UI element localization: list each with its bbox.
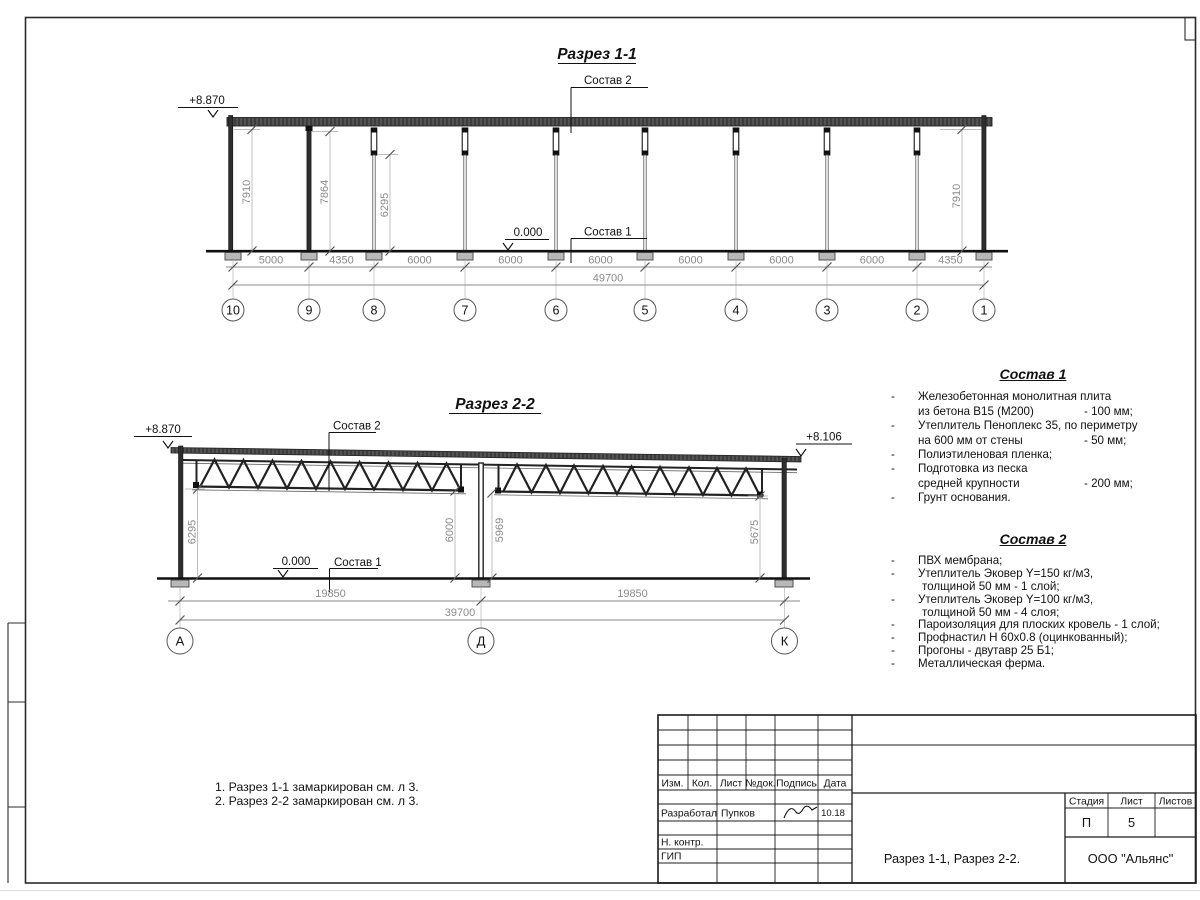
tb-col-ndok: №док.	[745, 779, 775, 790]
tb-sheet-value: 5	[1128, 815, 1135, 830]
svg-text:10: 10	[226, 304, 240, 318]
list-item: - Железобетонная монолитная плита	[878, 390, 1188, 404]
tb-sheets-h: Листов	[1159, 797, 1193, 808]
columns	[371, 128, 920, 252]
svg-text:+8.870: +8.870	[145, 424, 181, 436]
list-item: - Утеплитель Эковер Y=150 кг/м3,	[878, 568, 1188, 581]
svg-text:5: 5	[642, 304, 649, 318]
tb-doc-title: Разрез 1-1, Разрез 2-2.	[884, 851, 1020, 866]
tb-sheet-h: Лист	[1120, 797, 1143, 808]
svg-text:5675: 5675	[749, 520, 761, 544]
list-item: на 600 мм от стены - 50 мм;	[878, 434, 1188, 448]
list-item: - Грунт основания.	[878, 491, 1188, 505]
dim-chain: 5000 4350 6000 6000 6000 6000 6000 6000 …	[226, 255, 992, 300]
list-item: - Утеплитель Пеноплекс 35, по периметру	[878, 419, 1188, 433]
title-block: Изм. Кол. Лист №док. Подпись Дата Разраб…	[658, 715, 1196, 883]
svg-text:7910: 7910	[951, 184, 963, 208]
sostav1-spec: Состав 1 - Железобетонная монолитная пли…	[878, 367, 1188, 506]
svg-text:6: 6	[553, 304, 560, 318]
elevation-mark: +8.870	[178, 95, 238, 117]
axis-bubbles-2: А Д К	[167, 628, 798, 654]
sostav1-title: Состав 1	[878, 367, 1188, 381]
section1-title: Разрез 1-1	[557, 46, 637, 63]
svg-text:К: К	[781, 634, 789, 649]
svg-text:6295: 6295	[187, 520, 199, 544]
svg-text:6000: 6000	[678, 255, 702, 267]
signature	[784, 806, 817, 818]
svg-text:6000: 6000	[860, 255, 884, 267]
foundation-pads-2	[171, 580, 793, 587]
tb-stage-h: Стадия	[1069, 797, 1104, 808]
elevation-mark-right-2: +8.106	[796, 432, 852, 457]
list-item: толщиной 50 мм - 1 слой;	[878, 581, 1188, 594]
tb-nk-role: Н. контр.	[661, 838, 704, 849]
svg-text:7910: 7910	[241, 180, 253, 204]
svg-text:2: 2	[914, 304, 921, 318]
tb-dev-name: Пупков	[721, 809, 755, 820]
elevation-mark-left-2: +8.870	[134, 424, 192, 448]
svg-text:6295: 6295	[379, 193, 391, 217]
section-1-1: Разрез 1-1	[178, 46, 1008, 321]
tb-col-list: Лист	[720, 779, 743, 790]
list-item: - Полиэтиленовая пленка;	[878, 448, 1188, 462]
svg-text:5000: 5000	[259, 255, 283, 267]
tb-col-podpis: Подпись	[776, 779, 817, 790]
svg-text:0.000: 0.000	[282, 556, 311, 568]
svg-text:4: 4	[733, 304, 740, 318]
vertical-dims-2: 6295 6000 5969 5675	[185, 485, 768, 583]
truss-right	[494, 465, 768, 499]
note-line: 1. Разрез 1-1 замаркирован см. л 3.	[215, 780, 419, 794]
section-2-2: Разрез 2-2	[134, 396, 852, 654]
svg-text:6000: 6000	[498, 255, 522, 267]
roof-slab-2	[171, 448, 801, 463]
sostav1-leader-2: Состав 1	[330, 557, 382, 592]
svg-text:6000: 6000	[769, 255, 793, 267]
svg-text:+8.870: +8.870	[189, 95, 225, 107]
svg-text:Д: Д	[477, 634, 486, 649]
svg-text:3: 3	[824, 304, 831, 318]
list-item: из бетона В15 (М200) - 100 мм;	[878, 405, 1188, 419]
tb-dev-role: Разработал	[661, 808, 717, 820]
axis-bubbles: 10 9 8 7 6 5 4 3 2 1	[222, 299, 995, 321]
svg-text:Состав 1: Состав 1	[334, 557, 382, 569]
svg-text:19850: 19850	[315, 588, 346, 600]
svg-text:39700: 39700	[445, 607, 476, 619]
note-line: 2. Разрез 2-2 замаркирован см. л 3.	[215, 794, 419, 808]
zero-level-mark: 0.000	[503, 227, 549, 250]
svg-text:+8.106: +8.106	[806, 432, 842, 444]
svg-text:4350: 4350	[938, 255, 962, 267]
tb-col-izm: Изм.	[661, 779, 683, 790]
list-item: - Металлическая ферма.	[878, 658, 1188, 671]
tb-dev-date: 10.18	[821, 808, 845, 819]
svg-text:7864: 7864	[319, 180, 331, 204]
zero-level-mark-2: 0.000	[273, 556, 318, 577]
svg-text:Состав 2: Состав 2	[333, 421, 381, 433]
svg-text:1: 1	[981, 304, 988, 318]
svg-text:0.000: 0.000	[514, 227, 543, 239]
list-item: средней крупности - 200 мм;	[878, 477, 1188, 491]
svg-text:6000: 6000	[588, 255, 612, 267]
tb-col-data: Дата	[824, 779, 847, 790]
svg-text:Состав 1: Состав 1	[584, 227, 632, 239]
svg-text:А: А	[176, 634, 185, 649]
svg-text:49700: 49700	[593, 273, 624, 285]
svg-text:4350: 4350	[329, 255, 353, 267]
svg-text:9: 9	[306, 304, 313, 318]
tb-gip-role: ГИП	[661, 852, 681, 863]
svg-text:Состав 2: Состав 2	[584, 75, 632, 87]
sostav2-spec: Состав 2 - ПВХ мембрана; - Утеплитель Эк…	[878, 533, 1188, 671]
roof-slab	[227, 118, 992, 127]
drawing-sheet: Разрез 1-1	[0, 0, 1200, 900]
svg-text:19850: 19850	[617, 588, 648, 600]
list-item: - Утеплитель Эковер Y=100 кг/м3,	[878, 594, 1188, 607]
list-item: - Подготовка из песка	[878, 462, 1188, 476]
svg-text:6000: 6000	[444, 518, 456, 542]
dim-chain-2: 19850 19850 39700	[168, 588, 800, 628]
tb-company: ООО "Альянс"	[1088, 851, 1174, 866]
svg-text:7: 7	[462, 304, 469, 318]
svg-text:5969: 5969	[494, 518, 506, 542]
section2-title: Разрез 2-2	[455, 396, 535, 413]
sostav2-title: Состав 2	[878, 533, 1188, 546]
svg-text:8: 8	[371, 304, 378, 318]
list-item: - ПВХ мембрана;	[878, 555, 1188, 568]
svg-text:6000: 6000	[407, 255, 431, 267]
notes: 1. Разрез 1-1 замаркирован см. л 3. 2. Р…	[215, 780, 419, 808]
tb-col-kol: Кол.	[692, 779, 712, 790]
tb-stage-value: П	[1082, 815, 1091, 830]
